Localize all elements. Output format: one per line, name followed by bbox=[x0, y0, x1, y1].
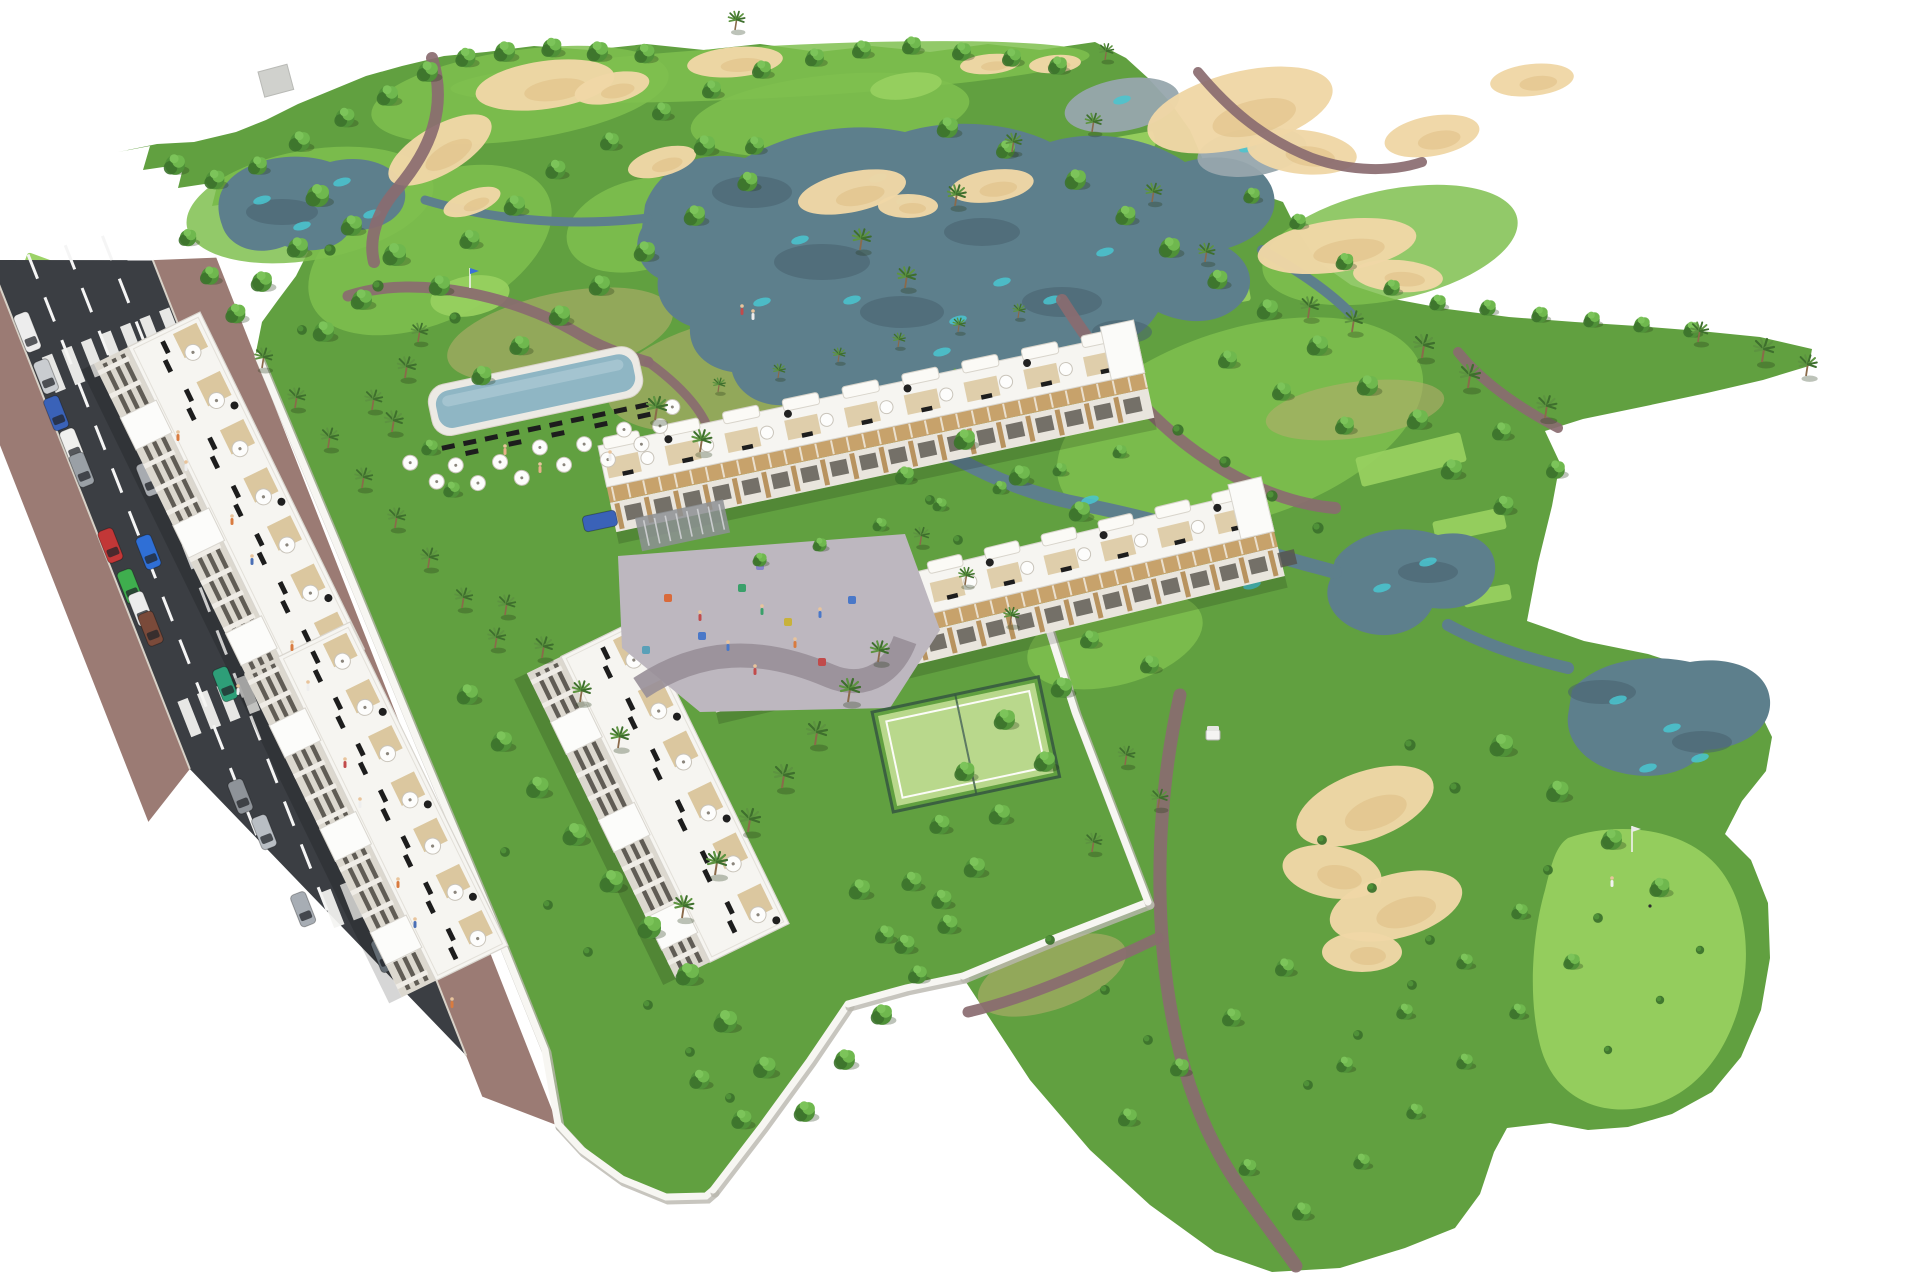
tree-canopy bbox=[448, 482, 455, 489]
tree-canopy bbox=[1313, 335, 1322, 344]
cart-roof bbox=[1207, 726, 1219, 731]
palm-shadow bbox=[810, 745, 828, 752]
bush-highlight bbox=[298, 326, 304, 332]
palm-shadow bbox=[1802, 376, 1818, 382]
palm-shadow bbox=[951, 206, 967, 212]
tree-canopy bbox=[253, 156, 261, 164]
tree-canopy bbox=[1638, 317, 1645, 324]
tree-canopy bbox=[1015, 465, 1024, 474]
tree-canopy bbox=[996, 481, 1002, 487]
tree-canopy bbox=[913, 965, 921, 973]
tree-canopy bbox=[435, 275, 444, 284]
palm-shadow bbox=[955, 332, 966, 336]
tree-canopy bbox=[1341, 253, 1349, 261]
palm-trunk bbox=[735, 20, 737, 30]
tree-canopy bbox=[816, 538, 822, 544]
palm-shadow bbox=[414, 342, 428, 348]
bush-highlight bbox=[1267, 491, 1273, 497]
bush-highlight bbox=[325, 245, 331, 251]
palm-shadow bbox=[291, 408, 306, 414]
palm-shadow bbox=[1006, 625, 1020, 630]
palm-shadow bbox=[1757, 362, 1775, 369]
tree-canopy bbox=[810, 48, 818, 56]
person bbox=[726, 640, 730, 651]
tree-canopy bbox=[937, 890, 946, 899]
tree-canopy bbox=[1499, 496, 1508, 505]
tree-canopy bbox=[957, 42, 965, 50]
tree-canopy bbox=[1165, 237, 1174, 246]
tree-canopy bbox=[595, 275, 604, 284]
palm-shadow bbox=[777, 788, 795, 795]
person-head bbox=[740, 304, 744, 308]
tree-canopy bbox=[1121, 206, 1130, 215]
tree-canopy bbox=[907, 36, 915, 44]
tree-canopy bbox=[936, 498, 942, 504]
palm-shadow bbox=[576, 702, 592, 708]
tree-canopy bbox=[593, 41, 602, 50]
tree-canopy bbox=[1655, 878, 1664, 887]
palm-shadow bbox=[1121, 765, 1135, 771]
tree-canopy bbox=[210, 170, 219, 179]
bush-highlight bbox=[450, 313, 456, 319]
tree-canopy bbox=[880, 925, 888, 933]
bush-highlight bbox=[954, 536, 960, 542]
tree-canopy bbox=[1536, 307, 1543, 314]
tree-canopy bbox=[1263, 299, 1272, 308]
tree-canopy bbox=[383, 85, 392, 94]
tree-canopy bbox=[857, 40, 865, 48]
person bbox=[1610, 876, 1614, 887]
tree-canopy bbox=[1297, 1202, 1305, 1210]
water-reflection bbox=[1568, 680, 1636, 704]
tree-canopy bbox=[1057, 677, 1066, 686]
palm-shadow bbox=[1540, 418, 1557, 425]
palm-shadow bbox=[695, 452, 712, 459]
palm-shadow bbox=[1304, 318, 1320, 324]
bush-highlight bbox=[1696, 946, 1701, 951]
palm-shadow bbox=[856, 250, 872, 256]
palm-frond bbox=[729, 20, 736, 22]
person-body bbox=[237, 688, 240, 695]
tree-canopy bbox=[426, 440, 433, 447]
palm-shadow bbox=[368, 410, 383, 416]
person bbox=[306, 680, 310, 691]
person-head bbox=[184, 460, 188, 464]
tree-canopy bbox=[1401, 1004, 1408, 1011]
tree-canopy bbox=[876, 518, 882, 524]
person-body bbox=[819, 611, 822, 618]
person-body bbox=[344, 761, 347, 768]
bush-highlight bbox=[1594, 914, 1600, 920]
aerial-development-render bbox=[0, 0, 1920, 1280]
tree-canopy bbox=[840, 1049, 849, 1058]
white-structure bbox=[258, 64, 294, 97]
tree-canopy bbox=[1145, 655, 1153, 663]
palm-shadow bbox=[458, 608, 473, 614]
person bbox=[343, 757, 347, 768]
tree-canopy bbox=[690, 205, 699, 214]
person-head bbox=[396, 877, 400, 881]
person bbox=[818, 607, 822, 618]
bush-highlight bbox=[1450, 783, 1456, 789]
tree-canopy bbox=[1434, 295, 1441, 302]
bush-highlight bbox=[1304, 1081, 1310, 1087]
tree-canopy bbox=[743, 172, 752, 181]
tree-canopy bbox=[855, 879, 864, 888]
person bbox=[751, 309, 755, 320]
bush-highlight bbox=[584, 948, 590, 954]
person bbox=[503, 444, 507, 455]
palm-shadow bbox=[258, 368, 273, 374]
bush-highlight bbox=[686, 1048, 692, 1054]
person-head bbox=[726, 640, 730, 644]
palm-shadow bbox=[895, 347, 906, 351]
tree-canopy bbox=[1588, 312, 1595, 319]
person-head bbox=[306, 680, 310, 684]
person-head bbox=[230, 514, 234, 518]
play-equipment bbox=[698, 632, 706, 640]
person-body bbox=[754, 668, 757, 675]
person-body bbox=[307, 684, 310, 691]
person-head bbox=[698, 610, 702, 614]
bush-highlight bbox=[1405, 740, 1411, 746]
person-head bbox=[751, 309, 755, 313]
tree-canopy bbox=[737, 1110, 746, 1119]
scene-svg bbox=[0, 0, 1920, 1280]
tree-canopy bbox=[477, 366, 486, 375]
water-reflection bbox=[1672, 731, 1732, 753]
tree-canopy bbox=[1461, 954, 1468, 961]
palm-shadow bbox=[1201, 262, 1215, 268]
golf-cart bbox=[1206, 726, 1220, 740]
tree-canopy bbox=[1280, 958, 1288, 966]
sand-shading bbox=[1350, 947, 1386, 965]
tree-canopy bbox=[497, 731, 506, 740]
tree-canopy bbox=[1244, 1159, 1252, 1167]
person-head bbox=[250, 554, 254, 558]
person-body bbox=[414, 921, 417, 928]
person-body bbox=[397, 881, 400, 888]
tree-canopy bbox=[569, 823, 579, 833]
bush-highlight bbox=[1408, 981, 1414, 987]
palm-shadow bbox=[614, 748, 630, 754]
person-body bbox=[752, 313, 755, 320]
palm-shadow bbox=[715, 392, 726, 396]
person-body bbox=[609, 454, 612, 461]
bush-highlight bbox=[1046, 936, 1052, 942]
water-reflection bbox=[860, 296, 944, 328]
person-head bbox=[343, 757, 347, 761]
palm-shadow bbox=[1348, 332, 1364, 338]
person-head bbox=[753, 664, 757, 668]
palm-shadow bbox=[1148, 202, 1162, 208]
bush-highlight bbox=[1604, 1046, 1609, 1051]
person bbox=[608, 450, 612, 461]
tree-canopy bbox=[1001, 140, 1009, 148]
tree-canopy bbox=[389, 243, 399, 253]
tree-canopy bbox=[551, 160, 560, 169]
play-equipment bbox=[642, 646, 650, 654]
tree-canopy bbox=[347, 215, 356, 224]
tree-canopy bbox=[960, 429, 969, 438]
tree-canopy bbox=[555, 305, 564, 314]
tree-canopy bbox=[1496, 734, 1506, 744]
tree-canopy bbox=[357, 289, 366, 298]
palm-frond bbox=[1808, 364, 1816, 367]
bush-highlight bbox=[1426, 936, 1432, 942]
bush-highlight bbox=[926, 496, 932, 502]
tree-canopy bbox=[423, 61, 432, 70]
tree-canopy bbox=[640, 241, 649, 250]
person bbox=[793, 637, 797, 648]
tree-canopy bbox=[1040, 751, 1049, 760]
tree-canopy bbox=[759, 1057, 769, 1067]
tree-canopy bbox=[532, 777, 542, 787]
bush-highlight bbox=[726, 1094, 732, 1100]
palm-shadow bbox=[1102, 60, 1115, 65]
person bbox=[698, 610, 702, 621]
person bbox=[413, 917, 417, 928]
golf-hole bbox=[1648, 904, 1651, 907]
bush-highlight bbox=[1368, 884, 1374, 890]
palm-shadow bbox=[1694, 342, 1709, 348]
bush-highlight bbox=[373, 281, 379, 287]
person bbox=[230, 514, 234, 525]
palm-shadow bbox=[916, 545, 930, 550]
tree-canopy bbox=[1075, 501, 1084, 510]
tree-canopy bbox=[231, 304, 240, 313]
person bbox=[753, 664, 757, 675]
tree bbox=[1479, 300, 1499, 316]
person bbox=[176, 430, 180, 441]
tree-canopy bbox=[877, 1004, 886, 1013]
tree-canopy bbox=[943, 915, 952, 924]
tree bbox=[1429, 295, 1449, 311]
person bbox=[740, 304, 744, 315]
bush-highlight bbox=[644, 1001, 650, 1007]
tree-canopy bbox=[295, 131, 304, 140]
bush-highlight bbox=[1354, 1031, 1360, 1037]
palm-shadow bbox=[501, 615, 516, 621]
tree-canopy bbox=[960, 762, 969, 771]
palm-shadow bbox=[1463, 388, 1481, 395]
water-reflection bbox=[944, 218, 1020, 246]
tree-canopy bbox=[1341, 1057, 1348, 1064]
bush-highlight bbox=[1656, 996, 1661, 1001]
palm-shadow bbox=[538, 658, 554, 664]
tree-canopy bbox=[700, 135, 709, 144]
tree-canopy bbox=[1000, 709, 1009, 718]
palm-shadow bbox=[401, 378, 417, 384]
person bbox=[358, 797, 362, 808]
tree-canopy bbox=[293, 237, 302, 246]
bush-highlight bbox=[544, 901, 550, 907]
palm-shadow bbox=[677, 918, 694, 925]
tree-canopy bbox=[657, 102, 665, 110]
palm-shadow bbox=[1088, 852, 1102, 858]
person-body bbox=[539, 466, 542, 473]
palm-shadow bbox=[650, 420, 668, 427]
person-body bbox=[451, 1001, 454, 1008]
person-head bbox=[503, 444, 507, 448]
tree-canopy bbox=[205, 266, 213, 274]
person bbox=[396, 877, 400, 888]
person-head bbox=[413, 917, 417, 921]
tree-canopy bbox=[1213, 270, 1222, 279]
person-body bbox=[794, 641, 797, 648]
person-body bbox=[699, 614, 702, 621]
person-body bbox=[761, 608, 764, 615]
tree-canopy bbox=[1248, 188, 1255, 195]
tree-canopy bbox=[970, 857, 979, 866]
person-body bbox=[291, 644, 294, 651]
tree-canopy bbox=[500, 41, 509, 50]
person-head bbox=[538, 462, 542, 466]
tree-canopy bbox=[1552, 781, 1562, 791]
palm-shadow bbox=[961, 585, 975, 590]
tree-canopy bbox=[682, 963, 692, 973]
palm-shadow bbox=[388, 432, 404, 438]
tree-canopy bbox=[720, 1010, 730, 1020]
person-head bbox=[236, 684, 240, 688]
tree bbox=[834, 1049, 860, 1070]
tree-canopy bbox=[907, 872, 916, 881]
person bbox=[760, 604, 764, 615]
person-body bbox=[741, 308, 744, 315]
tree-canopy bbox=[1123, 1108, 1131, 1116]
tree bbox=[1583, 312, 1603, 328]
tree-canopy bbox=[1116, 445, 1122, 451]
tree-canopy bbox=[1277, 382, 1285, 390]
tree-canopy bbox=[1294, 214, 1301, 221]
tree-canopy bbox=[900, 466, 908, 474]
tree-canopy bbox=[463, 684, 472, 693]
person-body bbox=[177, 434, 180, 441]
tree-canopy bbox=[515, 336, 524, 345]
tree-canopy bbox=[1497, 422, 1505, 430]
tree-canopy bbox=[757, 60, 765, 68]
tree-canopy bbox=[1388, 280, 1395, 287]
tree-canopy bbox=[319, 321, 328, 330]
tree-canopy bbox=[1175, 1058, 1183, 1066]
tree-canopy bbox=[1447, 459, 1456, 468]
tree-canopy bbox=[750, 136, 758, 144]
tree-canopy bbox=[1413, 409, 1422, 418]
bush-highlight bbox=[1220, 457, 1226, 463]
person-head bbox=[760, 604, 764, 608]
bush-highlight bbox=[1313, 523, 1319, 529]
bush-highlight bbox=[1318, 836, 1324, 842]
tree-canopy bbox=[640, 44, 649, 53]
palm-shadow bbox=[874, 662, 890, 668]
tree-canopy bbox=[707, 80, 715, 88]
palm-shadow bbox=[391, 528, 406, 534]
palm-tree bbox=[729, 12, 746, 36]
person-body bbox=[1611, 880, 1614, 887]
person-head bbox=[176, 430, 180, 434]
palm-shadow bbox=[1417, 358, 1435, 365]
tree-canopy bbox=[1411, 1104, 1418, 1111]
play-equipment bbox=[664, 594, 672, 602]
tree-canopy bbox=[1551, 460, 1559, 468]
palm-shadow bbox=[710, 875, 728, 882]
tree-canopy bbox=[1085, 630, 1093, 638]
tree-canopy bbox=[1607, 829, 1616, 838]
tree-canopy bbox=[510, 195, 519, 204]
person-body bbox=[231, 518, 234, 525]
play-equipment bbox=[738, 584, 746, 592]
tree-canopy bbox=[465, 230, 474, 239]
person-body bbox=[727, 644, 730, 651]
person-head bbox=[793, 637, 797, 641]
tree-canopy bbox=[1007, 48, 1015, 56]
person bbox=[250, 554, 254, 565]
tree-canopy bbox=[756, 553, 762, 559]
tree-canopy bbox=[935, 815, 944, 824]
palm-shadow bbox=[491, 648, 506, 654]
bush-highlight bbox=[1173, 425, 1179, 431]
palm-shadow bbox=[901, 288, 917, 294]
palm-frond bbox=[737, 20, 744, 22]
person-head bbox=[450, 997, 454, 1001]
person-head bbox=[818, 607, 822, 611]
person bbox=[184, 460, 188, 471]
tree-canopy bbox=[547, 38, 556, 47]
tree-canopy bbox=[1484, 300, 1491, 307]
tree-canopy bbox=[900, 935, 909, 944]
cart-body bbox=[1206, 730, 1220, 740]
tree-canopy bbox=[1056, 463, 1062, 469]
person bbox=[290, 640, 294, 651]
tree-canopy bbox=[1363, 375, 1372, 384]
tree-canopy bbox=[1071, 169, 1080, 178]
person bbox=[236, 684, 240, 695]
palm-shadow bbox=[324, 448, 339, 454]
person-body bbox=[185, 464, 188, 471]
tree bbox=[794, 1101, 820, 1122]
tree-canopy bbox=[1358, 1154, 1365, 1161]
person-body bbox=[251, 558, 254, 565]
play-equipment bbox=[818, 658, 826, 666]
tree bbox=[1633, 317, 1653, 333]
tree-canopy bbox=[1223, 350, 1231, 358]
tree-canopy bbox=[800, 1101, 809, 1110]
tree-canopy bbox=[1053, 56, 1061, 64]
palm-shadow bbox=[1015, 318, 1026, 322]
tree-canopy bbox=[461, 48, 470, 57]
person-head bbox=[358, 797, 362, 801]
tree-canopy bbox=[257, 271, 266, 280]
palm-shadow bbox=[775, 378, 786, 382]
tree-canopy bbox=[170, 154, 179, 163]
tree bbox=[251, 271, 277, 292]
palm-shadow bbox=[835, 362, 846, 366]
water-reflection bbox=[774, 244, 870, 280]
palm-shadow bbox=[1088, 132, 1102, 138]
bush-highlight bbox=[1544, 866, 1550, 872]
person-head bbox=[1610, 876, 1614, 880]
tree-canopy bbox=[1340, 416, 1348, 424]
tree-canopy bbox=[184, 229, 192, 237]
bush-highlight bbox=[501, 848, 507, 854]
palm-shadow bbox=[1008, 152, 1022, 158]
tree-canopy bbox=[605, 132, 613, 140]
person bbox=[450, 997, 454, 1008]
palm-shadow bbox=[743, 832, 761, 839]
person-head bbox=[290, 640, 294, 644]
person bbox=[538, 462, 542, 473]
palm-shadow bbox=[731, 30, 745, 36]
